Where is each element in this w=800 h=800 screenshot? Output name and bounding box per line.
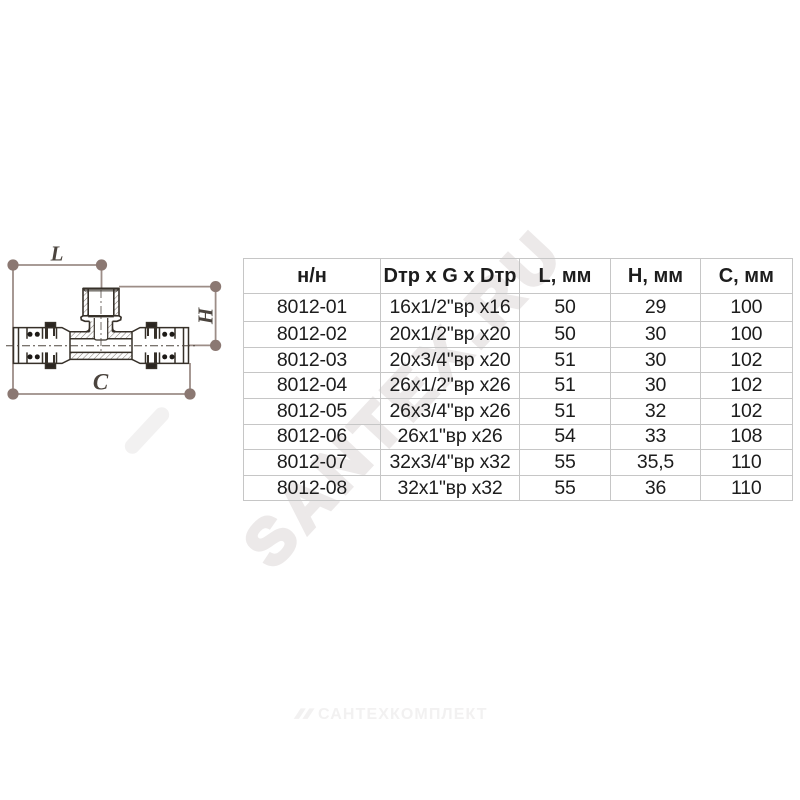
svg-text:C: C: [93, 370, 109, 395]
svg-text:H: H: [194, 307, 218, 325]
svg-text:L: L: [50, 242, 64, 266]
